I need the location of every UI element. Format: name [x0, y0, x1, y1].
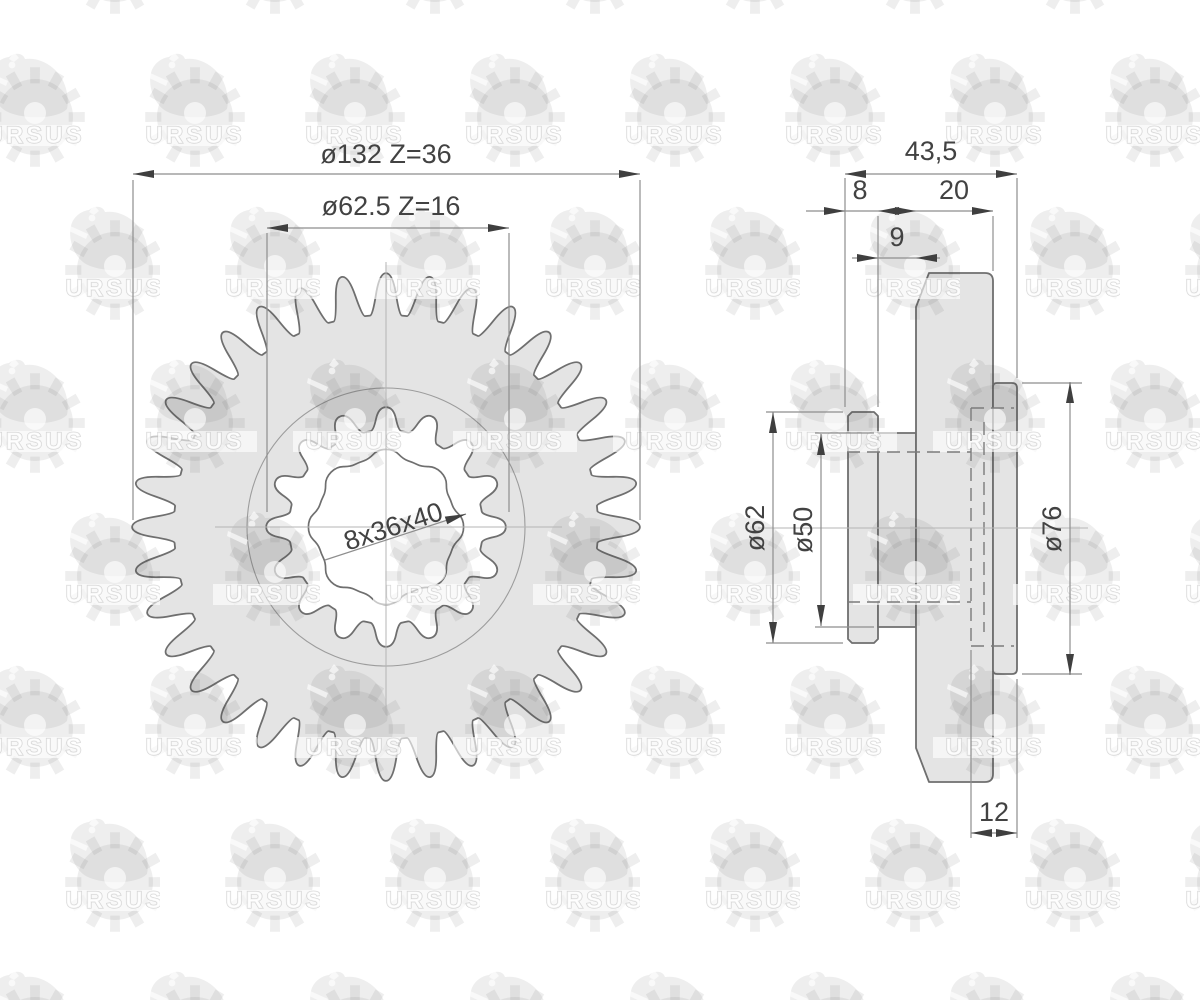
label-inner-gear-dim: ø62.5 Z=16 [322, 191, 461, 221]
technical-drawing-page: URSUS ø132 Z=36 ø62.5 Z=16 8x36x40 43,5 … [0, 0, 1200, 1000]
label-flange-width: 8 [852, 175, 867, 205]
label-outer-gear-dim: ø132 Z=36 [320, 139, 451, 169]
label-web-offset: 9 [889, 222, 904, 252]
label-recess-depth: 12 [979, 797, 1009, 827]
label-gear-width: 20 [939, 175, 969, 205]
label-flange-diameter: ø62 [740, 505, 770, 552]
label-web-diameter: ø50 [788, 507, 818, 554]
label-boss-diameter: ø76 [1037, 506, 1067, 553]
watermark-pattern-overlay [0, 0, 1200, 1000]
gear-drawing-svg: URSUS ø132 Z=36 ø62.5 Z=16 8x36x40 43,5 … [0, 0, 1200, 1000]
label-total-width: 43,5 [905, 136, 958, 166]
